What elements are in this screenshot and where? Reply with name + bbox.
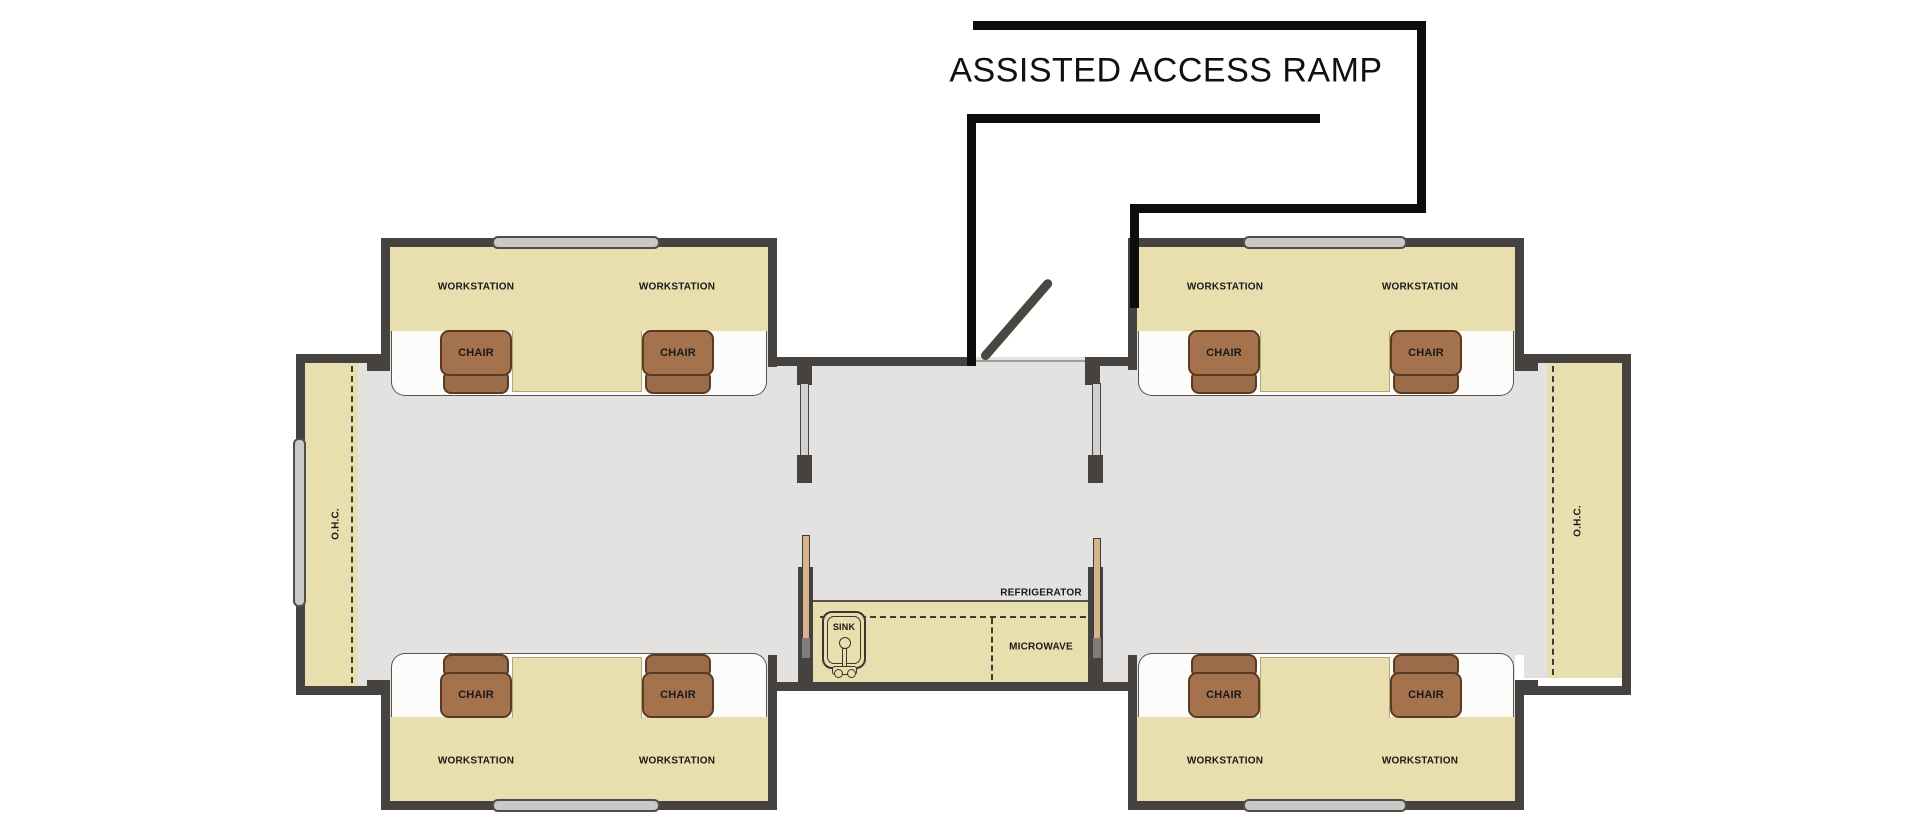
floor-plan: O.H.C. O.H.C. WORKSTATION WORKSTATION WO… [0,0,1920,838]
partition-track [800,383,809,458]
chair: CHAIR [1188,654,1260,718]
ramp-outer-right-line [1417,21,1426,213]
workstation-label: WORKSTATION [639,756,715,767]
chair-label: CHAIR [1206,347,1242,359]
right-ohc-dashed-line [1552,366,1554,675]
chair: CHAIR [1188,330,1260,394]
chair-seat: CHAIR [1188,672,1260,718]
wall [1622,354,1631,695]
workstation-label: WORKSTATION [1187,282,1263,293]
window [1243,799,1407,812]
wall [1515,238,1524,363]
chair: CHAIR [642,654,714,718]
chair-seat: CHAIR [440,672,512,718]
right-passage-floor-2 [1515,370,1524,655]
ramp-outer-top-line [973,21,1426,30]
workstation-label: WORKSTATION [1382,282,1458,293]
window [293,438,306,607]
chair-label: CHAIR [1408,689,1444,701]
door-jamb [1085,357,1100,385]
chair-seat: CHAIR [1390,330,1462,376]
chair-label: CHAIR [660,689,696,701]
right-ohc-cabinet [1547,363,1622,678]
chair: CHAIR [642,330,714,394]
ramp-lower-return-line [1130,204,1426,213]
wall [777,682,1128,691]
chair-label: CHAIR [458,689,494,701]
chair: CHAIR [440,330,512,394]
window [492,236,660,249]
faucet-stem [842,648,847,667]
right-top-desk-return [1260,331,1390,392]
right-bottom-desk-return [1260,657,1390,718]
partition-post [1088,455,1103,483]
pocket-door-end [802,638,810,658]
left-ohc-dashed-line [351,366,353,683]
right-ohc-label: O.H.C. [1573,505,1584,537]
ramp-inner-top-line [967,114,1320,123]
right-passage-floor [1128,370,1137,655]
chair-seat: CHAIR [440,330,512,376]
wall [1128,655,1137,810]
chair-label: CHAIR [660,347,696,359]
chair-seat: CHAIR [1390,672,1462,718]
left-bottom-desk-return [512,657,642,718]
workstation-label: WORKSTATION [1382,756,1458,767]
pocket-door-panel [1093,538,1101,640]
window [1243,236,1407,249]
partition-track [1092,383,1101,458]
sink-label: SINK [833,622,855,632]
ramp-title: ASSISTED ACCESS RAMP [949,52,1382,91]
wall [381,686,390,810]
ramp-building-entry-line [1130,204,1139,308]
chair: CHAIR [440,654,512,718]
chair-label: CHAIR [1408,347,1444,359]
wall [381,238,390,363]
workstation-label: WORKSTATION [1187,756,1263,767]
ramp-inner-left-line [967,114,976,366]
workstation-label: WORKSTATION [438,282,514,293]
counter-dashed-line-v [991,618,993,680]
chair-seat: CHAIR [1188,330,1260,376]
chair-seat: CHAIR [642,330,714,376]
pocket-door-panel [802,535,810,640]
pocket-door-end [1093,638,1101,658]
faucet-knob [834,669,843,678]
left-top-desk-return [512,331,642,392]
wall [1524,686,1631,695]
right-slideout-gap-floor [1524,363,1547,678]
workstation-label: WORKSTATION [438,756,514,767]
wall [777,357,971,366]
partition-post [797,455,812,483]
wall [296,686,381,695]
wall [1524,354,1631,363]
left-passage-floor [768,367,777,655]
wall [768,238,777,367]
chair: CHAIR [1390,330,1462,394]
window [492,799,660,812]
workstation-label: WORKSTATION [639,282,715,293]
refrigerator-label: REFRIGERATOR [1000,588,1081,599]
wall [296,354,381,363]
faucet-knob [847,669,856,678]
chair-seat: CHAIR [642,672,714,718]
left-ohc-label: O.H.C. [331,508,342,540]
chair: CHAIR [1390,654,1462,718]
chair-label: CHAIR [1206,689,1242,701]
left-slideout-gap-floor [357,363,390,686]
wall [1515,686,1524,810]
wall [768,655,777,810]
entry-door-leaf [979,277,1054,362]
microwave-label: MICROWAVE [1009,642,1073,653]
chair-label: CHAIR [458,347,494,359]
